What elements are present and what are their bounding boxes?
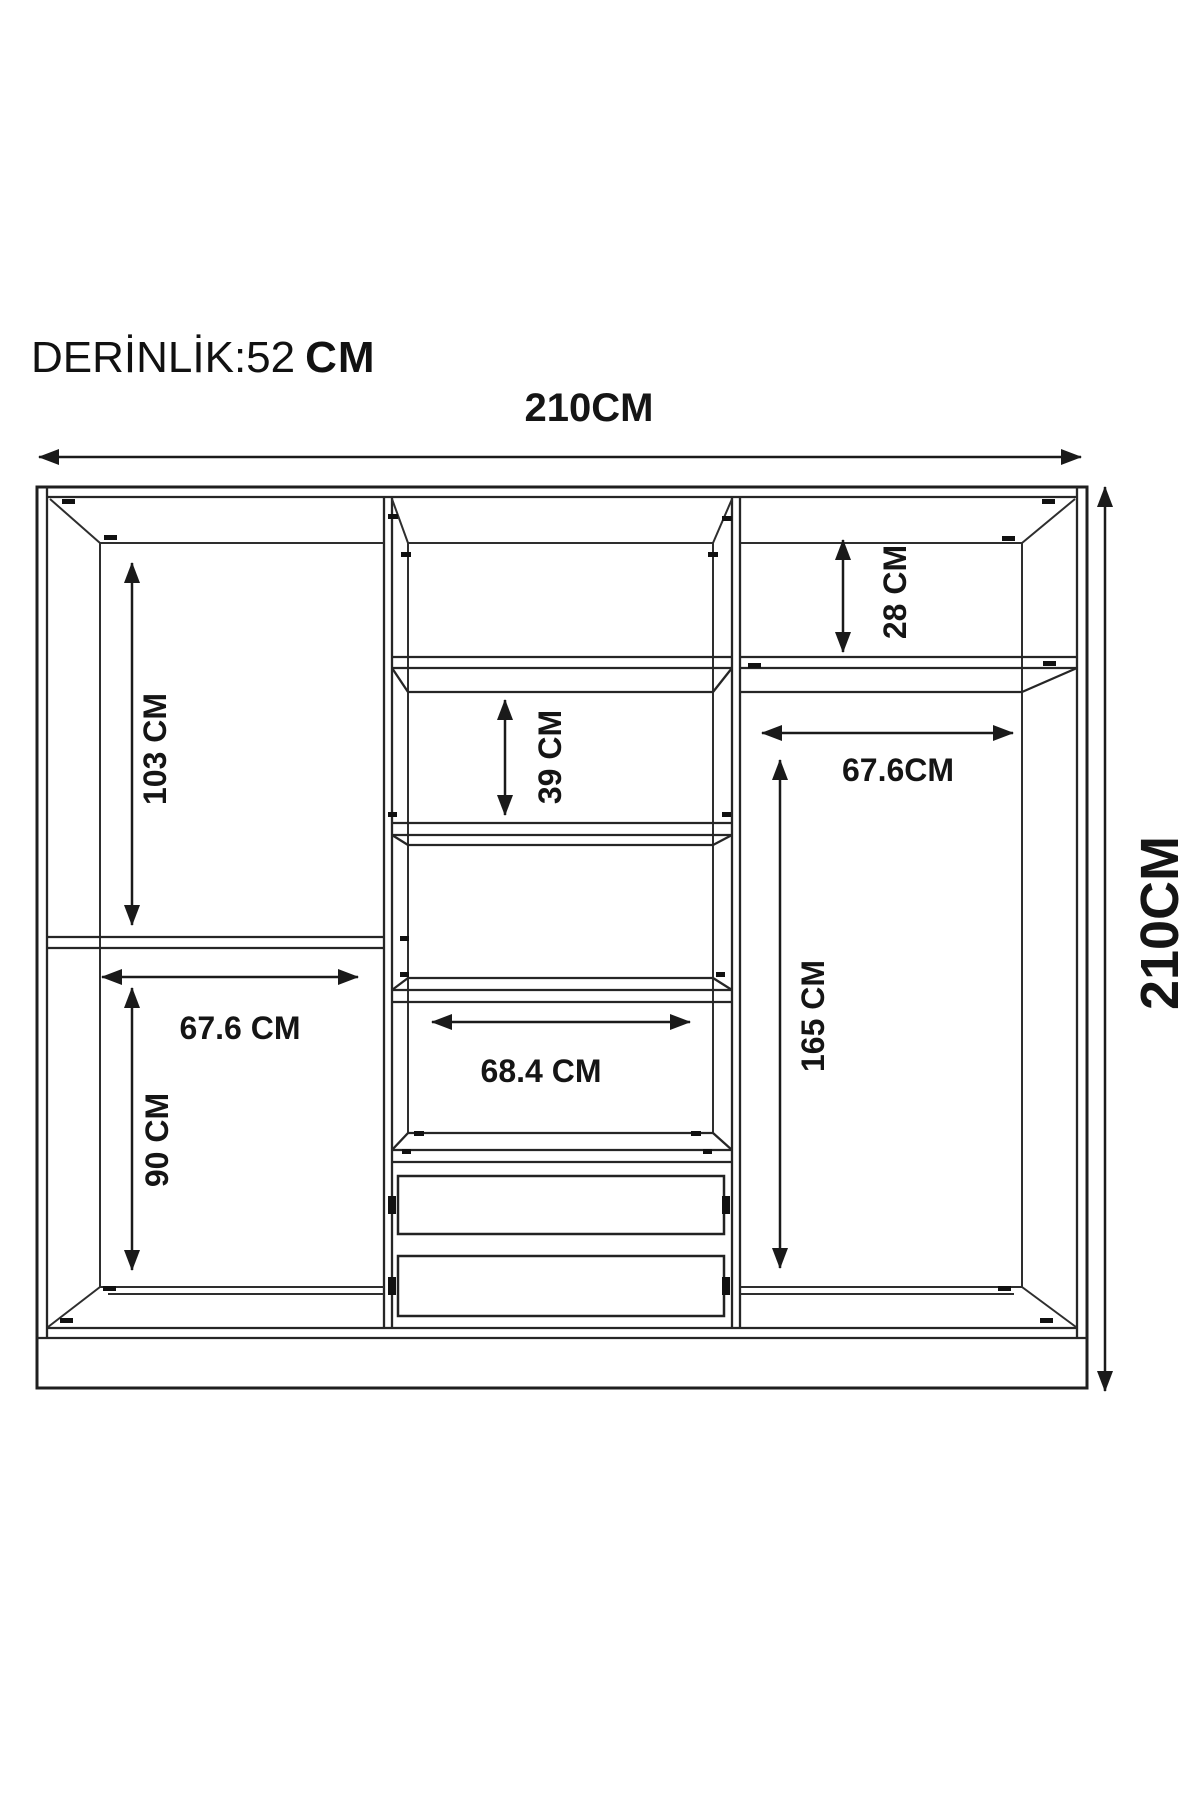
left-upper-height-label: 103 CM (139, 693, 171, 805)
right-shelf (740, 657, 1077, 692)
partitions (384, 497, 740, 1328)
depth-title: DERİNLİK:52CM (31, 336, 376, 380)
depth-title-unit: CM (305, 333, 375, 382)
depth-title-text: DERİNLİK:52 (31, 333, 295, 382)
overall-height-label: 210CM (1133, 836, 1187, 1010)
right-shelf-width-label: 67.6CM (842, 754, 954, 786)
drawer-2 (398, 1256, 724, 1316)
drawer-1 (398, 1176, 724, 1234)
middle-compartment-height-label: 39 CM (534, 710, 566, 804)
left-lower-height-label: 90 CM (141, 1093, 173, 1187)
right-hanging-height-label: 165 CM (797, 960, 829, 1072)
dimension-lines (39, 457, 1105, 1391)
right-top-height-label: 28 CM (879, 545, 911, 639)
drawer-handles (388, 1196, 730, 1295)
overall-width-label: 210CM (525, 388, 654, 428)
wardrobe-line-drawing (0, 0, 1200, 1800)
cabinet-inner-walls (37, 487, 1087, 1338)
left-divider-shelf (47, 937, 384, 948)
middle-shelf-width-label: 68.4 CM (481, 1055, 602, 1087)
wardrobe-dimension-diagram: DERİNLİK:52CM 210CM 210CM 103 CM 67.6 CM… (0, 0, 1200, 1800)
left-shelf-width-label: 67.6 CM (180, 1012, 301, 1044)
back-panel-edges (48, 499, 1076, 1327)
